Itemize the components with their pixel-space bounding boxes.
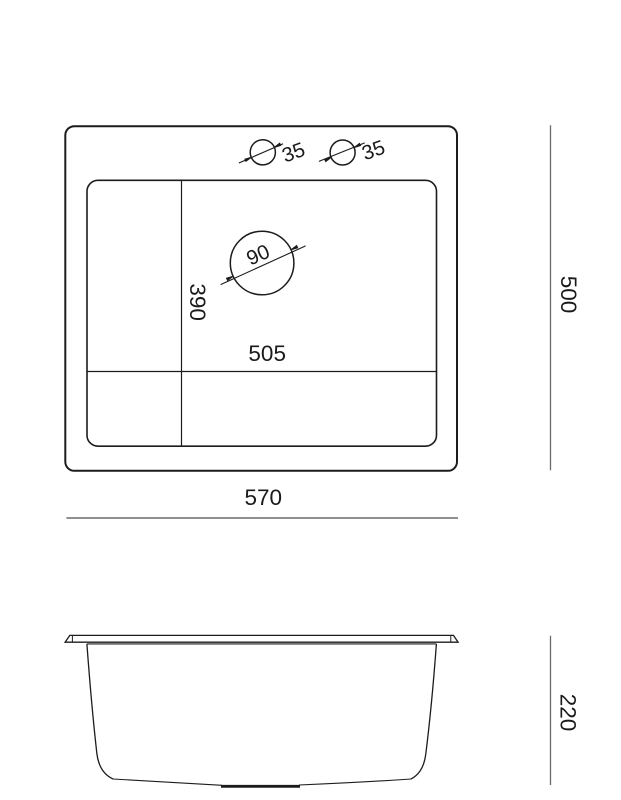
svg-text:220: 220 (556, 694, 581, 732)
svg-text:570: 570 (245, 485, 283, 510)
svg-text:505: 505 (248, 341, 286, 366)
svg-text:500: 500 (556, 276, 581, 314)
svg-text:390: 390 (185, 283, 210, 321)
